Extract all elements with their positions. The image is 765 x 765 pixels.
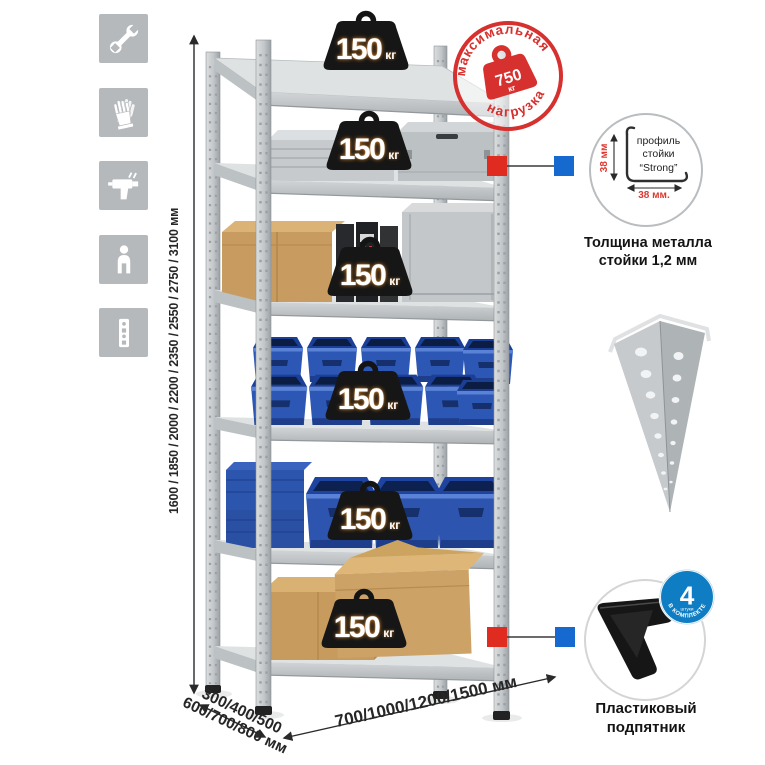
- load-unit: кг: [389, 274, 400, 288]
- load-value: 150: [334, 611, 380, 645]
- metal-thickness-caption: Толщина металла стойки 1,2 мм: [575, 234, 721, 271]
- shelf-4-load-weight: 150кг: [324, 360, 412, 424]
- gloves-icon: [99, 88, 148, 137]
- profile-detail-label: профиль стойки “Strong”: [631, 135, 686, 175]
- wrench-icon: [99, 14, 148, 63]
- load-value: 150: [336, 33, 382, 67]
- shelf-1-load-weight: 150кг: [322, 10, 410, 74]
- shelving-product-infographic: максимальная нагрузка 750 кг 150кг 150кг…: [0, 0, 765, 765]
- person-icon: [99, 235, 148, 284]
- profile-label-line3: “Strong”: [631, 162, 686, 175]
- thickness-caption-line1: Толщина металла: [575, 234, 721, 252]
- steel-angle-post: [610, 316, 709, 512]
- foot-caption-line1: Пластиковый: [584, 700, 708, 719]
- profile-label-line1: профиль: [631, 135, 686, 148]
- badge-sub-text: штуки: [681, 607, 694, 612]
- load-value: 150: [340, 259, 386, 293]
- plastic-foot-caption: Пластиковый подпятник: [584, 700, 708, 738]
- profile-height-dim: 38 мм: [599, 133, 613, 183]
- load-value: 150: [339, 133, 385, 167]
- max-load-stamp: максимальная нагрузка 750 кг: [448, 16, 568, 136]
- foot-marker-red: [487, 627, 507, 647]
- foot-caption-line2: подпятник: [584, 719, 708, 738]
- shelf-2-load-weight: 150кг: [325, 110, 413, 174]
- load-unit: кг: [387, 398, 398, 412]
- load-unit: кг: [388, 148, 399, 162]
- load-unit: кг: [385, 48, 396, 62]
- load-unit: кг: [389, 518, 400, 532]
- shelf-6-load-weight: 150кг: [320, 588, 408, 652]
- profile-width-dim: 38 мм.: [624, 190, 684, 201]
- included-count-badge: 4 штуки В КОМПЛЕКТЕ: [658, 568, 716, 626]
- upright-profile-icon: [99, 308, 148, 357]
- profile-marker-blue: [554, 156, 574, 176]
- load-value: 150: [340, 503, 386, 537]
- profile-marker-red: [487, 156, 507, 176]
- shelf-5-load-weight: 150кг: [326, 480, 414, 544]
- foot-marker-blue: [555, 627, 575, 647]
- load-value: 150: [338, 383, 384, 417]
- profile-label-line2: стойки: [631, 148, 686, 161]
- shelf-3-load-weight: 150кг: [326, 236, 414, 300]
- thickness-caption-line2: стойки 1,2 мм: [575, 252, 721, 270]
- height-dimension-label: 1600 / 1850 / 2000 / 2200 / 2350 / 2550 …: [163, 30, 185, 692]
- load-unit: кг: [383, 626, 394, 640]
- drill-icon: [99, 161, 148, 210]
